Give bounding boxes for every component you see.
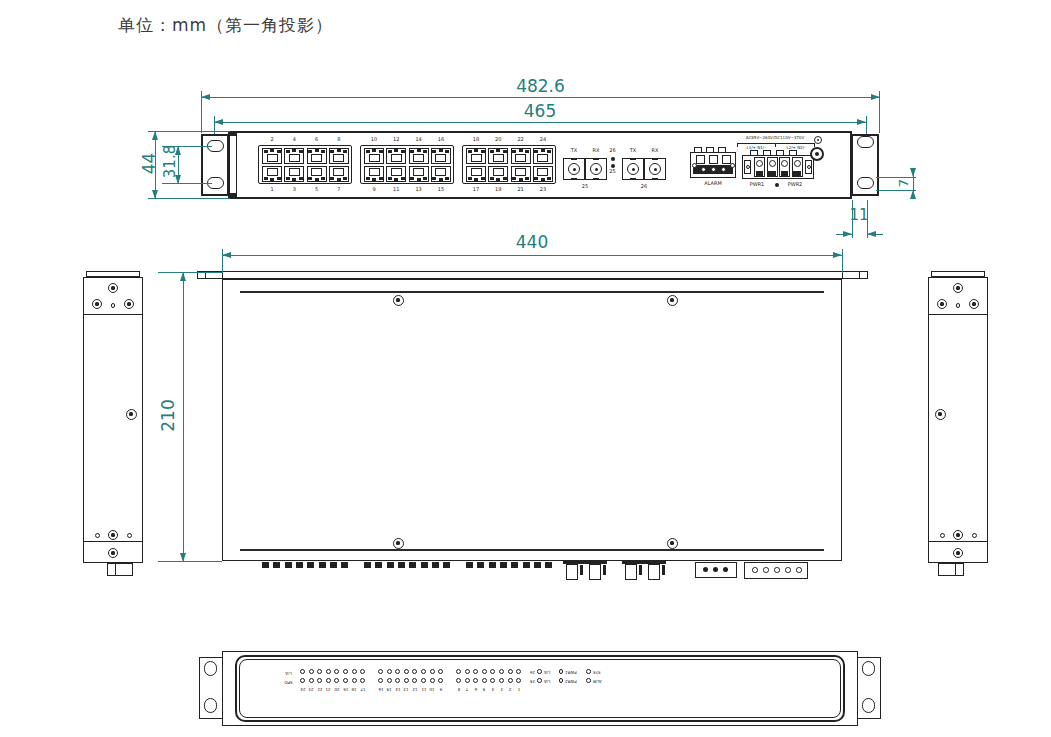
power-cell-screw (769, 160, 776, 167)
rj45-pins (372, 149, 376, 152)
alarm-screw (721, 167, 726, 172)
alarm-side-screw (730, 163, 735, 168)
top-rj45-profile (443, 562, 450, 568)
rj45-pins (264, 150, 268, 153)
rj45-pins (401, 177, 405, 180)
side-screw-dot (956, 286, 959, 289)
status-led (559, 678, 564, 683)
rj45-pins (388, 150, 392, 153)
sc-notch (652, 178, 658, 180)
rj45-pins (292, 178, 296, 181)
rj45-opening (435, 154, 446, 162)
top-rj45-profile (545, 562, 552, 568)
fiber-led-top-label: 26 (606, 148, 619, 153)
rj45-opening (471, 168, 482, 176)
port-led (378, 669, 383, 674)
dim-line (183, 272, 184, 562)
side-hole (972, 533, 977, 538)
top-rj45-profile (296, 562, 303, 568)
port-led (508, 678, 513, 683)
rj45-pins (519, 178, 523, 181)
sc-notch (571, 178, 577, 180)
top-flange (197, 271, 868, 279)
rj45-pins (512, 177, 516, 180)
power-bracket-tick (737, 143, 738, 147)
top-rj45-profile (534, 562, 541, 568)
side-screw-dot (111, 286, 114, 289)
dim-arrow (222, 252, 231, 258)
rj45-pins (490, 177, 494, 180)
side-screw-dot (940, 302, 943, 305)
status-led-row: 25L/APWR2ALM (530, 677, 601, 684)
rj45-opening (471, 154, 482, 162)
rj45-opening (515, 154, 526, 162)
rj45-opening (333, 168, 344, 176)
side-hole (127, 533, 132, 538)
top-rj45-profile (398, 562, 405, 568)
rj45-pins (541, 149, 545, 152)
rj45-pins (286, 150, 290, 153)
port-led (309, 669, 314, 674)
rj45-pins (277, 177, 281, 180)
port-led (430, 669, 435, 674)
dim-arrow (867, 231, 876, 237)
mechanical-drawing-canvas: 单位：mm（第一角投影） 482.6 465 44 31.8 7 11 440 … (0, 0, 1051, 737)
side-bottom-section-line (929, 541, 987, 542)
rj45-pins (468, 150, 472, 153)
rj45-pins (394, 178, 398, 181)
rj45-opening (413, 168, 424, 176)
dim-ear-hole-height: 7 (897, 169, 911, 197)
port-number-top: 22 (512, 137, 530, 142)
dim-body-depth: 210 (160, 389, 177, 443)
port-number-bottom: 5 (308, 187, 326, 192)
side-body (928, 277, 988, 563)
side-hole (940, 533, 945, 538)
port-led (456, 678, 461, 683)
rj45-opening (537, 154, 548, 162)
port-led (300, 669, 305, 674)
sc-ferrule-dot (654, 168, 657, 171)
rj45-pins (525, 150, 529, 153)
side-screw-dot (956, 551, 959, 554)
top-power-pin (796, 567, 802, 573)
rj45-opening (369, 168, 380, 176)
top-rj45-profile (511, 562, 518, 568)
port-led (352, 678, 357, 683)
rj45-pins (468, 177, 472, 180)
rj45-pins (534, 177, 538, 180)
rj45-pins (366, 150, 370, 153)
rj45-pins (547, 177, 551, 180)
sc-ferrule-dot (632, 168, 635, 171)
status-led (586, 669, 591, 674)
top-rj45-profile (341, 562, 348, 568)
top-power-pin (752, 567, 758, 573)
rj45-pins (481, 177, 485, 180)
rj45-pins (343, 177, 347, 180)
front-right-ear-hole-top (857, 136, 874, 148)
power-cell-screw (756, 160, 763, 167)
rj45-pins (337, 178, 341, 181)
pwr2-label: PWR2 (783, 182, 807, 187)
top-screw-dot (396, 298, 399, 301)
status-led-label: PWR1 (565, 670, 577, 674)
top-rj45-profile (273, 562, 280, 568)
rj45-pins (343, 150, 347, 153)
sc-ferrule-dot (595, 168, 598, 171)
rj45-pins (315, 149, 319, 152)
port-led (499, 678, 504, 683)
pwr1-label: PWR1 (745, 182, 769, 187)
fiber-port2-number: 26 (622, 184, 666, 189)
port-number-bottom: 7 (330, 187, 348, 192)
port-number-top: 20 (489, 137, 507, 142)
port-led (378, 678, 383, 683)
fiber1-rx-label: RX (585, 148, 607, 153)
rj45-pins (417, 178, 421, 181)
status-led-label: PWR2 (565, 679, 577, 683)
side-foot (107, 563, 133, 576)
dim-arrow (833, 252, 842, 258)
port-number-bottom: 19 (489, 187, 507, 192)
side-top-section-line (929, 314, 987, 315)
bottom-left-ear-hole (204, 661, 217, 676)
power-bracket (737, 143, 815, 144)
port-led (421, 669, 426, 674)
dim-ext-line (148, 198, 230, 199)
port-number-top: 2 (263, 137, 281, 142)
port-led (387, 669, 392, 674)
sc-notch (593, 158, 599, 160)
alarm-cell (722, 155, 731, 164)
dim-ext-line (842, 249, 843, 273)
power-bracket-tick (775, 143, 776, 147)
side-foot-line (955, 564, 956, 575)
rj45-pins (330, 177, 334, 180)
rj45-opening (537, 168, 548, 176)
dim-line (222, 255, 842, 256)
rj45-pins (321, 177, 325, 180)
status-led-label: L/A (544, 670, 550, 674)
dim-ext-line (879, 91, 880, 133)
rj45-pins (321, 150, 325, 153)
alarm-screw (711, 167, 716, 172)
sc-notch (571, 158, 577, 160)
rj45-pins (264, 177, 268, 180)
rj45-pins (299, 150, 303, 153)
side-screw-dot (972, 302, 975, 305)
dim-ear-hole-spacing: 31.8 (163, 138, 178, 186)
top-rj45-profile (432, 562, 439, 568)
top-rj45-profile (409, 562, 416, 568)
fiber-port1-number: 25 (563, 184, 607, 189)
port-number-top: 6 (308, 137, 326, 142)
dim-mounting-width: 465 (214, 103, 866, 120)
rj45-pins (292, 149, 296, 152)
rj45-pins (512, 150, 516, 153)
side-screw-dot (95, 302, 98, 305)
port-number-bottom: 11 (387, 187, 405, 192)
alarm-terminal-label: ALARM (686, 181, 740, 186)
top-alarm-pin (703, 567, 708, 572)
side-hole (956, 303, 961, 308)
dim-ear-depth: 11 (842, 208, 876, 223)
side-screw-dot (938, 412, 941, 415)
power-cell-screw (781, 160, 788, 167)
port-led-number: 1 (514, 687, 524, 691)
rj45-pins (270, 178, 274, 181)
top-power-pin (774, 567, 780, 573)
bottom-left-ear-hole (204, 698, 217, 713)
fiber-led-bottom-label: 25 (606, 169, 619, 174)
front-strip-mark-top (229, 132, 236, 136)
top-rj45-profile (477, 562, 484, 568)
units-note: 单位：mm（第一角投影） (118, 14, 333, 37)
rj45-opening (267, 154, 278, 162)
rj45-opening (333, 154, 344, 162)
port-led (421, 678, 426, 683)
rj45-pins (315, 178, 319, 181)
side-hole (111, 303, 116, 308)
dim-ext-line (866, 116, 867, 134)
port-number-top: 8 (330, 137, 348, 142)
power-cell-screw (794, 160, 801, 167)
power-input1-label: L1/+ N1/- (739, 146, 773, 150)
rj45-pins (379, 177, 383, 180)
dim-arrow (843, 231, 852, 237)
dim-arrow (180, 272, 186, 281)
rj45-opening (289, 154, 300, 162)
rj45-opening (515, 168, 526, 176)
led-row-label: SPD (282, 680, 295, 684)
port-led-number: 9 (436, 687, 446, 691)
port-number-bottom: 15 (432, 187, 450, 192)
top-sc-stem (639, 565, 642, 575)
power-body (742, 155, 814, 179)
rj45-pins (432, 177, 436, 180)
rj45-pins (410, 177, 414, 180)
rj45-pins (286, 177, 290, 180)
port-led-number: 17 (358, 687, 368, 691)
top-power-pin (763, 567, 769, 573)
top-rj45-profile (262, 562, 269, 568)
port-number-bottom: 17 (467, 187, 485, 192)
top-rj45-profile (500, 562, 507, 568)
top-rj45-profile (330, 562, 337, 568)
port-number-bottom: 1 (263, 187, 281, 192)
rj45-pins (308, 177, 312, 180)
dim-ext-line (148, 131, 230, 132)
rj45-pins (490, 150, 494, 153)
top-inner-edge (240, 291, 824, 293)
led-row-label: L/A (282, 671, 295, 675)
rj45-pins (270, 149, 274, 152)
rj45-opening (369, 154, 380, 162)
rj45-pins (445, 150, 449, 153)
console-jack-dot (815, 152, 819, 156)
status-led-label: 25 (530, 679, 535, 683)
status-led-label: SYS (593, 670, 601, 674)
dim-ext-line (158, 561, 222, 562)
status-led (537, 678, 542, 683)
top-power-pin (785, 567, 791, 573)
top-screw-dot (396, 541, 399, 544)
rj45-pins (496, 149, 500, 152)
status-led (537, 669, 542, 674)
rj45-pins (394, 149, 398, 152)
port-led (343, 678, 348, 683)
status-led-row: 26L/APWR1SYS (530, 668, 600, 675)
port-led (499, 669, 504, 674)
rj45-pins (496, 178, 500, 181)
rj45-pins (366, 177, 370, 180)
power-cell-slot (793, 171, 800, 176)
port-led (404, 669, 409, 674)
port-led (465, 669, 470, 674)
rj45-pins (439, 149, 443, 152)
top-rj45-profile (307, 562, 314, 568)
side-body (83, 277, 143, 563)
port-number-bottom: 9 (365, 187, 383, 192)
dim-ext-line (201, 91, 202, 133)
status-led (559, 669, 564, 674)
port-number-top: 14 (410, 137, 428, 142)
top-rj45-profile (364, 562, 371, 568)
port-number-bottom: 23 (534, 187, 552, 192)
port-number-bottom: 21 (512, 187, 530, 192)
front-strip-line (236, 132, 237, 198)
port-led (343, 669, 348, 674)
rj45-opening (311, 154, 322, 162)
rj45-pins (379, 150, 383, 153)
rj45-pins (439, 178, 443, 181)
sc-notch (593, 178, 599, 180)
bottom-right-ear-hole (862, 698, 875, 713)
power-center-screw (775, 183, 779, 187)
rj45-pins (388, 177, 392, 180)
power-rating-label: AC85V~264V/DC110V~370V (731, 136, 819, 140)
top-rj45-profile (375, 562, 382, 568)
top-rj45-profile (285, 562, 292, 568)
sc-notch (652, 158, 658, 160)
fiber2-tx-label: TX (622, 148, 644, 153)
port-led (456, 669, 461, 674)
port-number-top: 18 (467, 137, 485, 142)
side-top-section-line (84, 314, 142, 315)
fiber1-tx-label: TX (563, 148, 585, 153)
top-sc-stem (603, 565, 606, 575)
rj45-pins (525, 177, 529, 180)
port-number-top: 16 (432, 137, 450, 142)
power-wing-screw (746, 165, 751, 170)
top-screw-dot (670, 541, 673, 544)
bottom-right-ear-hole (862, 661, 875, 676)
port-led (387, 678, 392, 683)
top-sc-stem (662, 565, 665, 575)
status-led-label: ALM (593, 679, 601, 683)
rj45-pins (519, 149, 523, 152)
top-rj45-profile (319, 562, 326, 568)
rj45-pins (541, 178, 545, 181)
rj45-pins (308, 150, 312, 153)
fiber2-rx-label: RX (644, 148, 666, 153)
rj45-pins (547, 150, 551, 153)
port-led (508, 669, 513, 674)
power-cell-slot (768, 171, 775, 176)
port-number-top: 4 (285, 137, 303, 142)
alarm-side-screw (692, 163, 697, 168)
rj45-pins (423, 177, 427, 180)
top-rj45-profile (387, 562, 394, 568)
rj45-pins (277, 150, 281, 153)
side-screw-dot (111, 551, 114, 554)
top-alarm-pin (713, 567, 718, 572)
rj45-opening (391, 168, 402, 176)
front-strip-mark-bottom (229, 193, 236, 197)
rj45-pins (410, 150, 414, 153)
sc-notch (630, 178, 636, 180)
port-number-top: 24 (534, 137, 552, 142)
side-screw-dot (111, 533, 114, 536)
rj45-pins (432, 150, 436, 153)
port-led (326, 669, 331, 674)
power-cell-slot (756, 171, 763, 176)
dim-line (214, 122, 866, 123)
dim-ext-line (158, 272, 222, 273)
power-wing-screw (807, 165, 812, 170)
port-led (309, 678, 314, 683)
fiber-led (611, 157, 615, 161)
top-flange-cap (859, 271, 868, 279)
top-sc-profile (648, 564, 660, 580)
dim-panel-height: 44 (141, 143, 158, 185)
rj45-opening (435, 168, 446, 176)
dim-overall-width: 482.6 (201, 78, 880, 95)
side-foot (938, 563, 964, 576)
port-led (482, 678, 487, 683)
rj45-pins (299, 177, 303, 180)
rj45-pins (474, 178, 478, 181)
rj45-pins (417, 149, 421, 152)
top-sc-profile (625, 564, 637, 580)
status-led-label: 26 (530, 670, 535, 674)
rj45-pins (330, 150, 334, 153)
alarm-screw (701, 167, 706, 172)
port-led (326, 678, 331, 683)
side-screw-dot (956, 533, 959, 536)
rj45-opening (413, 154, 424, 162)
top-sc-profile (566, 564, 578, 580)
top-inner-edge (240, 549, 824, 551)
status-led (586, 678, 591, 683)
side-screw-dot (127, 302, 130, 305)
rj45-opening (289, 168, 300, 176)
port-number-top: 12 (387, 137, 405, 142)
rj45-pins (445, 177, 449, 180)
side-hole (95, 533, 100, 538)
top-sc-stem (580, 565, 583, 575)
dim-ext-line (222, 249, 223, 273)
rj45-pins (503, 177, 507, 180)
rj45-pins (337, 149, 341, 152)
port-led (352, 669, 357, 674)
top-rj45-profile (466, 562, 473, 568)
alarm-cell (696, 155, 705, 164)
dim-arrow (152, 131, 158, 140)
rj45-pins (423, 150, 427, 153)
rj45-pins (372, 178, 376, 181)
